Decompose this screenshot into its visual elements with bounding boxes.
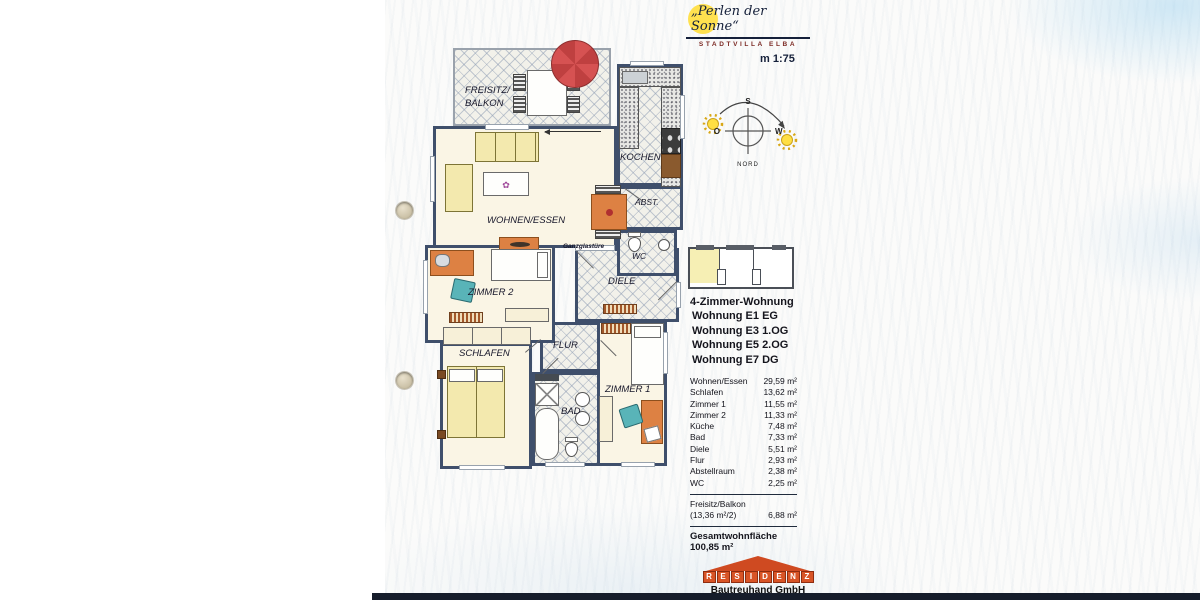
window	[545, 462, 585, 467]
bathtub	[535, 408, 559, 460]
area-value: 11,55 m²	[764, 399, 797, 410]
wardrobe-bench	[603, 304, 637, 314]
label-hall: DIELE	[608, 276, 635, 287]
wardrobe	[443, 327, 531, 345]
area-value: 13,62 m²	[763, 387, 797, 398]
chair	[513, 74, 526, 91]
punch-hole	[396, 202, 413, 219]
label-bedroom: SCHLAFEN	[459, 348, 510, 359]
brand-rule	[686, 37, 810, 39]
nightstand	[437, 430, 446, 439]
room-wc	[617, 230, 677, 276]
chair	[595, 230, 621, 239]
compass-west: W	[775, 127, 783, 136]
logo-letter: I	[745, 571, 758, 583]
kitchen-counter	[619, 87, 639, 149]
logo-letter: E	[717, 571, 730, 583]
sofa	[445, 164, 473, 212]
area-value: 2,93 m²	[768, 455, 797, 466]
chair	[513, 96, 526, 113]
balcony-area-value: 6,88 m²	[768, 510, 797, 521]
pillow	[537, 252, 548, 278]
area-value: 2,25 m²	[768, 478, 797, 489]
building-key-plan	[688, 247, 794, 289]
logo-letter: S	[731, 571, 744, 583]
pillow	[477, 369, 503, 382]
area-row: Zimmer 211,33 m²	[690, 410, 797, 421]
wash-basin	[575, 392, 590, 407]
area-label: WC	[690, 478, 704, 489]
window	[663, 332, 668, 374]
pillow	[449, 369, 475, 382]
logo-letter: R	[703, 571, 716, 583]
brand-header: „Perlen der Sonne“ STADTVILLA ELBA	[686, 4, 810, 48]
balcony-bar	[772, 245, 786, 250]
area-label: Zimmer 2	[690, 410, 726, 421]
direction-arrow-icon	[545, 131, 601, 132]
area-label: Zimmer 1	[690, 399, 726, 410]
coffee-table: ✿	[483, 172, 529, 196]
area-row: Wohnen/Essen29,59 m²	[690, 376, 797, 387]
apartment-unit: Wohnung E7 DG	[690, 353, 797, 368]
compass-north: NORD	[737, 162, 759, 168]
label-wc: WC	[632, 251, 646, 261]
paper-sheet	[643, 425, 661, 442]
desk	[430, 250, 474, 276]
umbrella-icon	[551, 40, 599, 88]
balcony-area-row: (13,36 m²/2) 6,88 m²	[690, 510, 797, 521]
radiator	[449, 312, 483, 323]
label-kitchen: KOCHEN	[620, 152, 661, 163]
label-balcony: FREISITZ/ BALKON	[465, 84, 510, 110]
area-row: Flur2,93 m²	[690, 455, 797, 466]
shower	[535, 383, 559, 406]
compass-east: O	[714, 127, 720, 136]
area-row: Küche7,48 m²	[690, 421, 797, 432]
label-balcony-line1: FREISITZ/	[465, 84, 510, 97]
label-bath: BAD	[561, 406, 581, 417]
area-row: Diele5,51 m²	[690, 444, 797, 455]
label-room2: ZIMMER 2	[468, 287, 513, 298]
area-value: 11,33 m²	[764, 410, 797, 421]
stove	[661, 128, 681, 154]
area-value: 7,48 m²	[768, 421, 797, 432]
label-corridor: FLUR	[553, 340, 578, 351]
nightstand	[437, 370, 446, 379]
floor-plan: ✿ FR	[425, 40, 688, 476]
wardrobe	[599, 396, 613, 442]
area-label: Abstellraum	[690, 466, 735, 477]
radiator	[601, 323, 631, 334]
window	[423, 260, 428, 314]
highlighted-unit	[690, 249, 720, 283]
chair	[595, 185, 621, 194]
window	[621, 462, 655, 467]
logo-letter: E	[773, 571, 786, 583]
balcony-area-label: Freisitz/Balkon	[690, 499, 797, 510]
area-value: 5,51 m²	[768, 444, 797, 455]
kitchen-cabinet	[661, 154, 681, 178]
logo-letter: N	[787, 571, 800, 583]
label-living: WOHNEN/ESSEN	[487, 215, 565, 226]
total-area: Gesamtwohnfläche 100,85 m²	[690, 531, 797, 553]
apartment-unit: Wohnung E3 1.OG	[690, 324, 797, 339]
apartment-info: 4-Zimmer-Wohnung Wohnung E1 EG Wohnung E…	[690, 296, 797, 553]
compass-south: S	[745, 97, 751, 106]
window	[630, 61, 664, 66]
label-storage: ABST.	[635, 197, 659, 207]
logo-letter: Z	[801, 571, 814, 583]
company-name: Bautreuhand GmbH	[702, 585, 814, 596]
balcony-bar	[696, 245, 714, 250]
porch	[717, 269, 726, 285]
window	[459, 465, 505, 470]
area-row: Abstellraum2,38 m²	[690, 466, 797, 477]
chair	[567, 96, 580, 113]
area-label: Flur	[690, 455, 705, 466]
area-row: Bad7,33 m²	[690, 432, 797, 443]
area-row: Zimmer 111,55 m²	[690, 399, 797, 410]
desk	[641, 400, 663, 444]
dining-table	[591, 194, 627, 230]
logo-letters: R E S I D E N Z	[702, 571, 814, 583]
area-value: 29,59 m²	[763, 376, 797, 387]
scale-label: m 1:75	[760, 53, 795, 65]
shower-head	[535, 374, 559, 381]
table-rule	[690, 526, 797, 527]
pillow	[634, 326, 661, 338]
wash-basin	[658, 239, 670, 251]
balcony-door-opening	[485, 124, 529, 130]
porch	[752, 269, 761, 285]
balcony-bar	[726, 245, 754, 250]
company-logo: R E S I D E N Z Bautreuhand GmbH	[702, 556, 814, 596]
sofa	[475, 132, 539, 162]
kitchen-sink	[622, 71, 648, 84]
area-label: Schlafen	[690, 387, 723, 398]
balcony-area-detail: (13,36 m²/2)	[690, 510, 736, 521]
area-label: Diele	[690, 444, 709, 455]
area-row: Schlafen13,62 m²	[690, 387, 797, 398]
sun-west-icon	[782, 135, 793, 146]
brand-subtitle: STADTVILLA ELBA	[686, 41, 810, 48]
area-label: Bad	[690, 432, 705, 443]
apartment-type: 4-Zimmer-Wohnung	[690, 296, 797, 308]
desk-lamp	[435, 254, 450, 267]
sun-path-arc	[720, 102, 784, 126]
bowl	[510, 242, 530, 247]
area-label: Wohnen/Essen	[690, 376, 748, 387]
area-value: 2,38 m²	[768, 466, 797, 477]
label-room1: ZIMMER 1	[605, 384, 650, 395]
label-balcony-line2: BALKON	[465, 97, 510, 110]
area-label: Küche	[690, 421, 714, 432]
window	[680, 95, 685, 139]
area-value: 7,33 m²	[768, 432, 797, 443]
brand-title: „Perlen der Sonne“	[691, 4, 810, 34]
apartment-unit: Wohnung E1 EG	[690, 309, 797, 324]
table-decor	[606, 209, 613, 216]
label-glass-door: Ganzglastüre	[563, 243, 604, 250]
area-row: WC2,25 m²	[690, 478, 797, 489]
apartment-unit: Wohnung E5 2.OG	[690, 338, 797, 353]
logo-letter: D	[759, 571, 772, 583]
table-rule	[690, 494, 797, 495]
punch-hole	[396, 372, 413, 389]
compass-rose: S O W NORD	[698, 88, 802, 172]
entrance-opening	[676, 282, 681, 308]
window	[430, 156, 435, 202]
sideboard	[505, 308, 549, 322]
roof-icon	[706, 556, 810, 571]
area-table: Wohnen/Essen29,59 m² Schlafen13,62 m² Zi…	[690, 376, 797, 489]
